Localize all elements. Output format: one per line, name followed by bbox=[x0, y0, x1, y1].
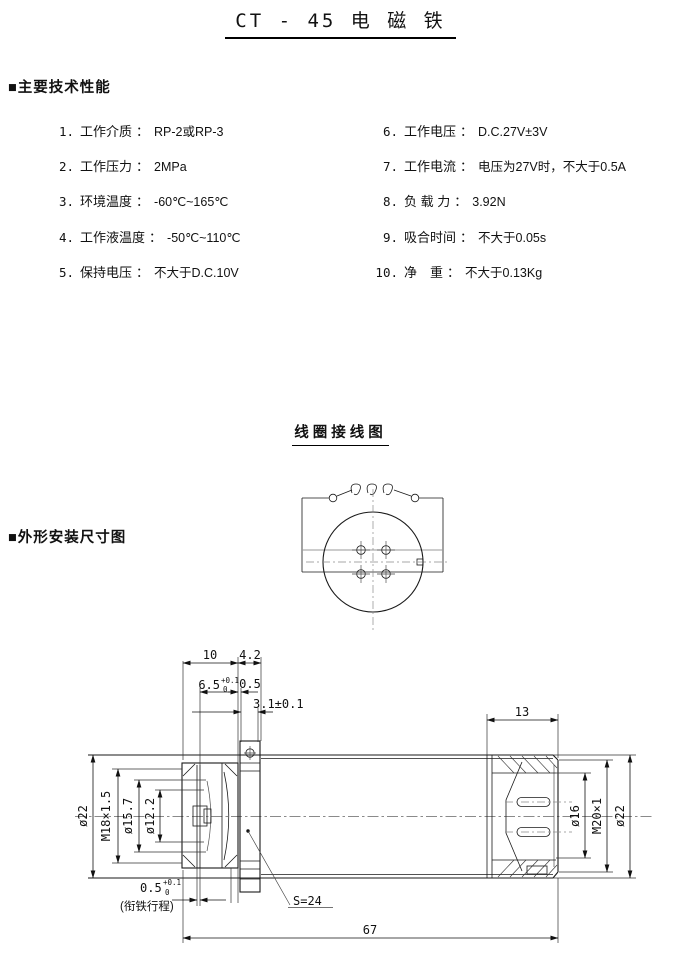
spec-value: -50℃~110℃ bbox=[167, 231, 240, 245]
spec-item: 8.负 载 力：3.92N bbox=[372, 191, 626, 226]
spec-item: 2.工作压力：2MPa bbox=[48, 156, 240, 191]
pin bbox=[377, 541, 395, 559]
spec-label: 环境温度 bbox=[80, 194, 132, 209]
spec-colon: ： bbox=[136, 159, 149, 174]
dim-4-2: 4.2 bbox=[239, 648, 261, 662]
dimension-drawing: 10 4.2 6.5 +0.1 0 0.5 3.1±0.1 13 67 ø22 … bbox=[55, 632, 681, 958]
dimension-labels: 10 4.2 6.5 +0.1 0 0.5 3.1±0.1 13 67 ø22 … bbox=[76, 648, 627, 937]
spec-label: 吸合时间 bbox=[404, 230, 456, 245]
spec-label: 工作电流 bbox=[404, 159, 456, 174]
pin bbox=[352, 541, 370, 559]
spec-number: 8. bbox=[372, 194, 398, 209]
dim-dia22-left: ø22 bbox=[76, 805, 90, 827]
spec-colon: ： bbox=[136, 124, 149, 139]
dim-dia12-2: ø12.2 bbox=[143, 798, 157, 834]
dim-dia22-right: ø22 bbox=[613, 805, 627, 827]
spec-colon: ： bbox=[460, 230, 473, 245]
dim-10: 10 bbox=[203, 648, 217, 662]
coil-heading: 线圈接线图 bbox=[292, 421, 389, 446]
dim-6-5-tol-dn: 0 bbox=[223, 685, 228, 694]
spec-number: 10. bbox=[372, 265, 398, 280]
dim-s24: S=24 bbox=[293, 894, 322, 908]
spec-number: 7. bbox=[372, 159, 398, 174]
coil-heading-wrap: 线圈接线图 bbox=[0, 421, 681, 446]
spec-value: -60℃~165℃ bbox=[154, 195, 228, 209]
spec-label: 保持电压 bbox=[80, 265, 132, 280]
coil-wiring-diagram bbox=[283, 468, 457, 634]
spec-item: 6.工作电压：D.C.27V±3V bbox=[372, 121, 626, 156]
dim-dia15-7: ø15.7 bbox=[121, 798, 135, 834]
section-heading-specs: ■主要技术性能 bbox=[8, 76, 111, 97]
spec-label: 负 载 力 bbox=[404, 194, 450, 209]
connector-pin-side bbox=[505, 798, 572, 837]
datasheet-page: CT - 45 电 磁 铁 ■主要技术性能 1.工作介质：RP-2或RP-3 2… bbox=[0, 0, 681, 960]
spec-item: 5.保持电压：不大于D.C.10V bbox=[48, 262, 240, 297]
spec-label: 工作电压 bbox=[404, 124, 456, 139]
spec-colon: ： bbox=[460, 124, 473, 139]
spec-value: 3.92N bbox=[472, 195, 505, 209]
connector-key-notch bbox=[527, 866, 547, 874]
dim-3-1: 3.1±0.1 bbox=[253, 697, 304, 711]
spec-value: 不大于0.05s bbox=[478, 231, 546, 245]
spec-number: 4. bbox=[48, 230, 74, 245]
connector-centerlines bbox=[306, 489, 447, 630]
flange-hole bbox=[244, 746, 256, 760]
spec-item: 7.工作电流：电压为27V时，不大于0.5A bbox=[372, 156, 626, 191]
spec-value: RP-2或RP-3 bbox=[154, 125, 223, 139]
spec-label: 工作压力 bbox=[80, 159, 132, 174]
title-wrap: CT - 45 电 磁 铁 bbox=[0, 6, 681, 39]
spec-label: 工作介质 bbox=[80, 124, 132, 139]
page-title: CT - 45 电 磁 铁 bbox=[225, 6, 455, 39]
dim-m18: M18×1.5 bbox=[99, 791, 113, 842]
dim-stroke-tol-dn: 0 bbox=[165, 888, 170, 897]
dim-6-5-tol-up: +0.1 bbox=[221, 676, 239, 685]
spec-number: 6. bbox=[372, 124, 398, 139]
spec-number: 5. bbox=[48, 265, 74, 280]
dim-0-5: 0.5 bbox=[239, 677, 261, 691]
dim-stroke-tol-up: +0.1 bbox=[163, 878, 181, 887]
spec-number: 1. bbox=[48, 124, 74, 139]
spec-item: 3.环境温度：-60℃~165℃ bbox=[48, 191, 240, 226]
pin bbox=[352, 565, 370, 583]
spec-label: 工作液温度 bbox=[80, 230, 145, 245]
spec-item: 9.吸合时间：不大于0.05s bbox=[372, 227, 626, 262]
spec-item: 4.工作液温度：-50℃~110℃ bbox=[48, 227, 240, 262]
dim-13: 13 bbox=[515, 705, 529, 719]
spec-colon: ： bbox=[460, 159, 473, 174]
spec-value: 不大于D.C.10V bbox=[154, 266, 239, 280]
spec-value: 电压为27V时，不大于0.5A bbox=[478, 160, 626, 174]
pin bbox=[377, 565, 395, 583]
spec-colon: ： bbox=[136, 194, 149, 209]
coil-symbol bbox=[329, 484, 419, 502]
dim-m20: M20×1 bbox=[590, 798, 604, 834]
spec-colon: ： bbox=[149, 230, 162, 245]
section-heading-outline: ■外形安装尺寸图 bbox=[8, 526, 126, 547]
dim-6-5: 6.5 bbox=[198, 678, 220, 692]
spec-column-left: 1.工作介质：RP-2或RP-3 2.工作压力：2MPa 3.环境温度：-60℃… bbox=[48, 121, 240, 297]
spec-colon: ： bbox=[454, 194, 467, 209]
dim-dia16: ø16 bbox=[568, 805, 582, 827]
spec-colon: ： bbox=[136, 265, 149, 280]
dim-stroke-0-5: 0.5 bbox=[140, 881, 162, 895]
spec-value: 2MPa bbox=[154, 160, 187, 174]
spec-item: 10.净 重：不大于0.13Kg bbox=[372, 262, 626, 297]
spec-colon: ： bbox=[447, 265, 460, 280]
dim-stroke-note: (衔铁行程) bbox=[120, 900, 174, 913]
spec-number: 2. bbox=[48, 159, 74, 174]
spec-label: 净 重 bbox=[404, 265, 443, 280]
spec-item: 1.工作介质：RP-2或RP-3 bbox=[48, 121, 240, 156]
spec-column-right: 6.工作电压：D.C.27V±3V 7.工作电流：电压为27V时，不大于0.5A… bbox=[372, 121, 626, 297]
spec-number: 3. bbox=[48, 194, 74, 209]
spec-number: 9. bbox=[372, 230, 398, 245]
dim-67: 67 bbox=[363, 923, 377, 937]
spec-value: 不大于0.13Kg bbox=[465, 266, 542, 280]
spec-value: D.C.27V±3V bbox=[478, 125, 547, 139]
